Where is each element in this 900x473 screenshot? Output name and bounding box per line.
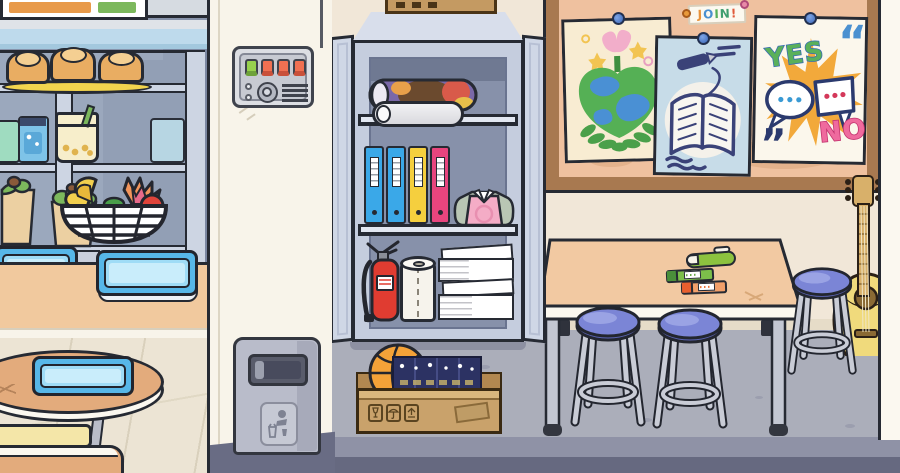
trash-slot[interactable] <box>248 354 308 386</box>
fragile-icon <box>368 404 383 422</box>
join-letter: J <box>697 8 702 22</box>
lid-line <box>58 124 96 127</box>
binder-pink[interactable] <box>430 146 450 224</box>
wall-stripe-blue <box>0 29 207 44</box>
stool-left[interactable] <box>562 304 654 438</box>
close-quote-glyph: ” <box>760 121 787 165</box>
tapioca-pearls <box>61 143 93 158</box>
table-scribble <box>0 384 16 394</box>
paper-towel-top <box>400 256 436 271</box>
marker-label <box>684 270 701 279</box>
floor-speckle <box>845 424 855 428</box>
bread-loaf[interactable] <box>6 52 50 84</box>
panel-knob[interactable] <box>257 82 278 103</box>
fruit-bowl[interactable] <box>56 176 172 246</box>
roll-core <box>413 261 425 267</box>
door-panel-line <box>337 42 348 335</box>
pushpin-pink-icon <box>740 0 749 9</box>
stool-middle[interactable] <box>644 306 736 440</box>
binder-label <box>392 157 401 187</box>
panel-button-red[interactable] <box>261 59 274 76</box>
fire-extinguisher[interactable] <box>358 238 406 326</box>
can-top <box>20 118 46 126</box>
door-panel-line <box>529 42 540 335</box>
pen-clip <box>713 246 730 254</box>
binder-hole <box>438 210 443 215</box>
poster-book[interactable] <box>653 35 753 177</box>
tray-face <box>109 263 185 283</box>
binder-label <box>370 157 379 187</box>
paper-towel-roll[interactable] <box>400 262 436 322</box>
menu-board <box>0 0 148 20</box>
cardboard-box-on-cabinet[interactable] <box>385 0 497 14</box>
binder-hole <box>394 210 399 215</box>
menu-board-side <box>148 0 215 18</box>
panel-light <box>245 94 252 101</box>
food-tray[interactable] <box>96 250 198 296</box>
low-bench[interactable] <box>0 445 124 473</box>
bubble-tea[interactable] <box>55 112 99 163</box>
litter-person-icon <box>267 409 291 439</box>
umbrella-icon <box>386 404 401 422</box>
box-stamp <box>412 2 421 8</box>
marker-label <box>698 283 715 292</box>
knob-inner <box>262 87 272 97</box>
bread-top <box>108 51 135 66</box>
join-letter: O <box>703 7 714 21</box>
green-drink-jar[interactable] <box>0 120 20 163</box>
trash-sticker <box>260 402 298 446</box>
wall-trim-light <box>0 20 207 29</box>
no-text: NO <box>818 113 869 149</box>
box-stamp <box>396 2 405 8</box>
binder-blue[interactable] <box>364 146 384 224</box>
pen-tip <box>686 254 700 266</box>
soda-can[interactable] <box>18 116 49 163</box>
tray-face <box>45 369 121 383</box>
panel-button-green[interactable] <box>245 59 258 76</box>
food-tray[interactable] <box>32 356 134 396</box>
stool-right[interactable] <box>776 265 868 389</box>
cabinet-door-right[interactable] <box>522 35 546 344</box>
storage-box-front[interactable] <box>356 388 502 434</box>
bench-rim <box>0 448 118 457</box>
slot-highlight <box>255 361 264 379</box>
marker-cap <box>682 282 693 292</box>
pillar-inner-line <box>218 0 220 473</box>
scene-school-room: J O I N ! <box>0 0 900 473</box>
panel-light <box>245 83 252 90</box>
open-quote-glyph: “ <box>837 16 867 67</box>
folded-shirt[interactable] <box>452 184 516 228</box>
join-letter: I <box>714 7 719 21</box>
join-letter: ! <box>731 6 737 20</box>
bread-top <box>60 47 87 63</box>
rolled-mat[interactable] <box>372 101 464 127</box>
speaker-line <box>282 99 308 102</box>
panel-cord <box>320 0 323 48</box>
mat-end-cap <box>376 105 391 123</box>
box-flap-edge <box>359 391 499 400</box>
paper-block <box>438 294 514 320</box>
pushpin-orange-icon <box>682 9 691 18</box>
menu-photo <box>98 2 136 13</box>
binder-label <box>414 157 423 187</box>
perforation-line <box>417 267 419 317</box>
box-stamp <box>428 2 437 8</box>
right-wall-edge <box>878 0 900 440</box>
panel-button-red[interactable] <box>277 59 290 76</box>
game-box-text-hint <box>400 380 474 385</box>
menu-photo <box>9 2 91 13</box>
bread-loaf[interactable] <box>98 52 144 83</box>
bread-loaf[interactable] <box>50 48 96 82</box>
this-way-up-icon <box>404 404 419 422</box>
orange-marker[interactable] <box>681 280 727 295</box>
binder-label <box>436 157 445 187</box>
binder-hole <box>372 210 377 215</box>
cabinet-top-face <box>352 12 524 42</box>
marker-cap <box>667 271 679 282</box>
binder-blue[interactable] <box>386 146 406 224</box>
wall-stripe-blue-dark <box>0 44 207 49</box>
bread-top <box>15 51 41 67</box>
control-panel[interactable] <box>232 46 314 108</box>
speaker-line <box>282 94 308 97</box>
glass-cup[interactable] <box>150 118 185 163</box>
speaker-line <box>282 84 308 87</box>
cabinet-door-left[interactable] <box>330 35 354 344</box>
poster-yes-no[interactable]: YES “ ” NO <box>752 15 869 165</box>
trash-can[interactable] <box>233 337 321 455</box>
paper-stacks[interactable] <box>438 244 518 322</box>
can-art <box>24 132 42 154</box>
binder-hole <box>416 210 421 215</box>
packing-tape <box>454 402 490 424</box>
join-letter: N <box>720 7 731 21</box>
binder-row <box>364 146 450 224</box>
join-note[interactable]: J O I N ! <box>688 3 747 25</box>
panel-button-red[interactable] <box>293 59 306 76</box>
binder-yellow[interactable] <box>408 146 428 224</box>
speaker-line <box>282 89 308 92</box>
wall-scratch <box>246 113 255 120</box>
